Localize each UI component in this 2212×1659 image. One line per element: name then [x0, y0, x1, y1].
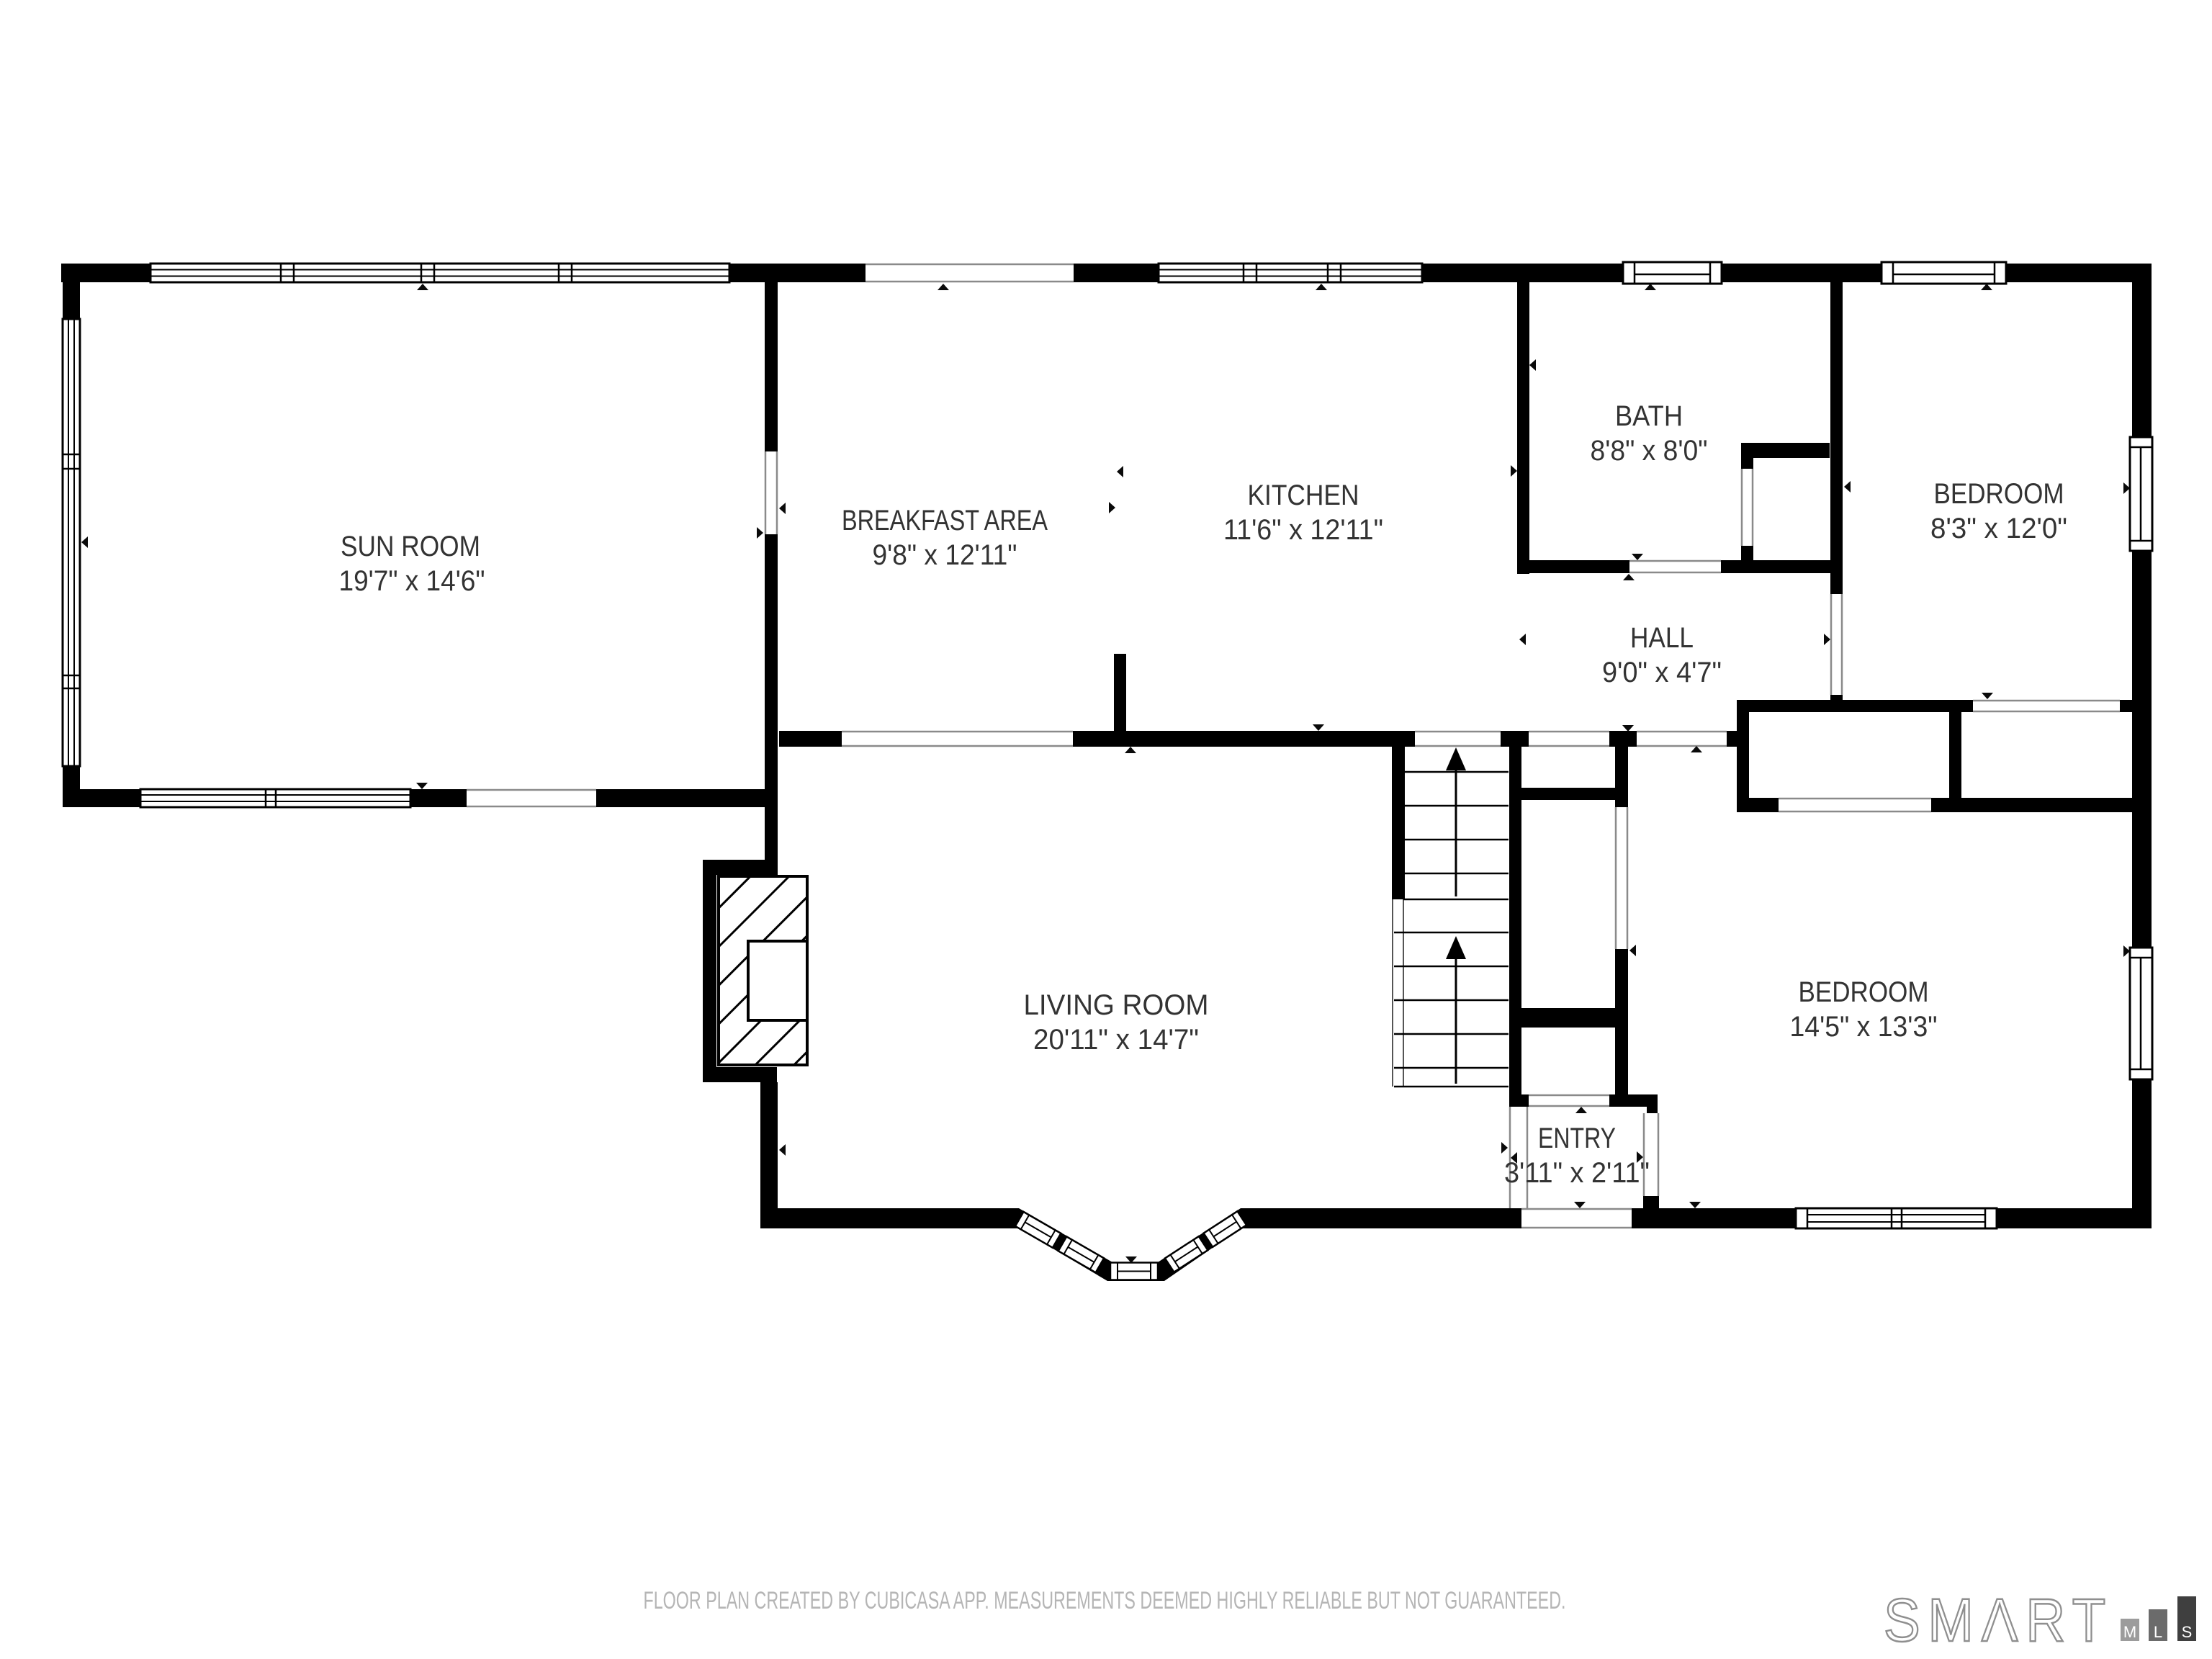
- svg-text:ENTRY: ENTRY: [1538, 1123, 1616, 1154]
- svg-text:20'11" x 14'7": 20'11" x 14'7": [1033, 1024, 1199, 1056]
- svg-text:LIVING ROOM: LIVING ROOM: [1024, 989, 1209, 1021]
- svg-text:S: S: [2182, 1623, 2193, 1641]
- svg-text:BEDROOM: BEDROOM: [1799, 976, 1929, 1008]
- svg-text:8'3" x 12'0": 8'3" x 12'0": [1930, 513, 2067, 544]
- svg-text:9'8" x 12'11": 9'8" x 12'11": [873, 539, 1017, 571]
- svg-text:HALL: HALL: [1630, 622, 1694, 654]
- svg-text:11'6" x 12'11": 11'6" x 12'11": [1223, 514, 1383, 546]
- svg-text:9'0" x 4'7": 9'0" x 4'7": [1602, 657, 1722, 688]
- svg-text:19'7" x 14'6": 19'7" x 14'6": [339, 565, 485, 597]
- svg-text:BATH: BATH: [1615, 400, 1683, 432]
- svg-text:SMΛRT: SMΛRT: [1884, 1586, 2113, 1654]
- svg-text:BEDROOM: BEDROOM: [1934, 478, 2064, 510]
- svg-text:SUN ROOM: SUN ROOM: [341, 531, 480, 562]
- svg-text:KITCHEN: KITCHEN: [1248, 480, 1359, 511]
- svg-text:8'8" x 8'0": 8'8" x 8'0": [1591, 435, 1708, 467]
- svg-text:FLOOR PLAN CREATED BY CUBICASA: FLOOR PLAN CREATED BY CUBICASA APP. MEAS…: [644, 1587, 1566, 1614]
- svg-text:L: L: [2154, 1623, 2162, 1641]
- svg-text:3'11" x 2'11": 3'11" x 2'11": [1504, 1157, 1650, 1189]
- svg-text:14'5" x 13'3": 14'5" x 13'3": [1790, 1011, 1938, 1043]
- svg-text:M: M: [2123, 1623, 2136, 1641]
- svg-text:BREAKFAST AREA: BREAKFAST AREA: [842, 505, 1048, 536]
